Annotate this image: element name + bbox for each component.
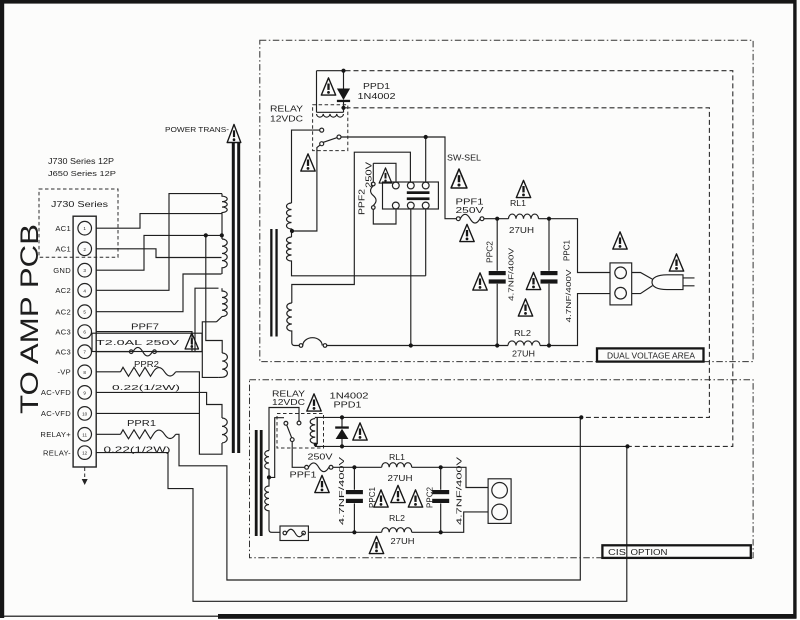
svg-text:AC2: AC2 (55, 286, 71, 295)
svg-text:-VP: -VP (57, 368, 71, 377)
svg-text:PPR1: PPR1 (127, 419, 157, 428)
svg-text:4.7NF/400V: 4.7NF/400V (507, 248, 516, 301)
svg-text:11: 11 (82, 432, 87, 437)
svg-text:PPC1: PPC1 (563, 239, 572, 261)
svg-text:5: 5 (83, 310, 86, 315)
svg-text:AC-VFD: AC-VFD (41, 388, 71, 397)
svg-text:PPD1: PPD1 (363, 82, 391, 91)
svg-text:10: 10 (82, 411, 88, 416)
svg-text:12VDC: 12VDC (272, 398, 305, 407)
svg-text:J730 Series 12P: J730 Series 12P (48, 157, 114, 166)
svg-text:AC1: AC1 (55, 245, 71, 254)
svg-text:6: 6 (83, 330, 86, 335)
svg-text:250V: 250V (456, 206, 485, 215)
svg-text:PPF1: PPF1 (290, 471, 318, 480)
svg-text:12VDC: 12VDC (270, 115, 303, 124)
svg-text:PPD1: PPD1 (334, 401, 363, 410)
svg-text:AC1: AC1 (55, 224, 71, 233)
svg-text:1N4002: 1N4002 (358, 92, 397, 101)
svg-text:GND: GND (53, 266, 71, 275)
svg-text:250V: 250V (365, 161, 374, 188)
svg-text:7: 7 (83, 350, 86, 355)
svg-text:4.7NF/400V: 4.7NF/400V (455, 457, 464, 525)
svg-text:TO AMP PCB: TO AMP PCB (16, 224, 44, 414)
svg-text:RELAY+: RELAY+ (40, 430, 71, 439)
svg-text:POWER TRANS-: POWER TRANS- (165, 125, 229, 134)
svg-text:1: 1 (83, 226, 86, 231)
svg-text:9: 9 (83, 390, 86, 395)
svg-text:250V: 250V (308, 453, 334, 462)
svg-text:RELAY: RELAY (270, 105, 304, 114)
svg-text:RL2: RL2 (514, 329, 532, 338)
svg-text:RL1: RL1 (510, 199, 527, 208)
svg-text:27UH: 27UH (391, 537, 415, 546)
svg-text:RL1: RL1 (389, 453, 406, 462)
svg-text:AC3: AC3 (55, 327, 71, 336)
svg-text:AC-VFD: AC-VFD (41, 409, 71, 418)
svg-text:J650 Series 12P: J650 Series 12P (48, 169, 116, 178)
svg-text:SW-SEL: SW-SEL (447, 154, 482, 163)
svg-text:J730 Series: J730 Series (51, 200, 108, 209)
svg-text:8: 8 (83, 370, 86, 375)
svg-text:27UH: 27UH (388, 474, 413, 483)
svg-text:DUAL VOLTAGE AREA: DUAL VOLTAGE AREA (607, 351, 696, 360)
svg-text:AC3: AC3 (55, 348, 71, 357)
svg-text:PPC1: PPC1 (368, 486, 377, 508)
svg-text:27UH: 27UH (509, 226, 534, 235)
svg-text:PPF2: PPF2 (358, 188, 367, 215)
svg-text:12: 12 (82, 451, 88, 456)
svg-text:OPTION: OPTION (631, 548, 668, 557)
svg-text:4: 4 (83, 288, 86, 293)
svg-text:4.7NF/400V: 4.7NF/400V (564, 270, 573, 323)
svg-text:2: 2 (83, 247, 86, 252)
svg-text:27UH: 27UH (512, 350, 535, 359)
svg-text:AC2: AC2 (55, 308, 71, 317)
svg-text:PPF7: PPF7 (131, 323, 160, 332)
svg-text:PPR2: PPR2 (134, 360, 160, 369)
svg-text:0.22(1/2W): 0.22(1/2W) (112, 383, 181, 392)
svg-text:PPC2: PPC2 (426, 486, 435, 508)
svg-text:RL2: RL2 (389, 514, 406, 523)
svg-text:T2.0AL 250V: T2.0AL 250V (96, 338, 181, 347)
svg-text:PPC2: PPC2 (486, 240, 495, 263)
svg-text:CIS: CIS (608, 548, 626, 557)
svg-text:3: 3 (83, 268, 86, 273)
svg-text:RELAY-: RELAY- (43, 448, 71, 457)
svg-text:4.7NF/400V: 4.7NF/400V (337, 457, 346, 525)
svg-text:1N4002: 1N4002 (330, 392, 370, 401)
